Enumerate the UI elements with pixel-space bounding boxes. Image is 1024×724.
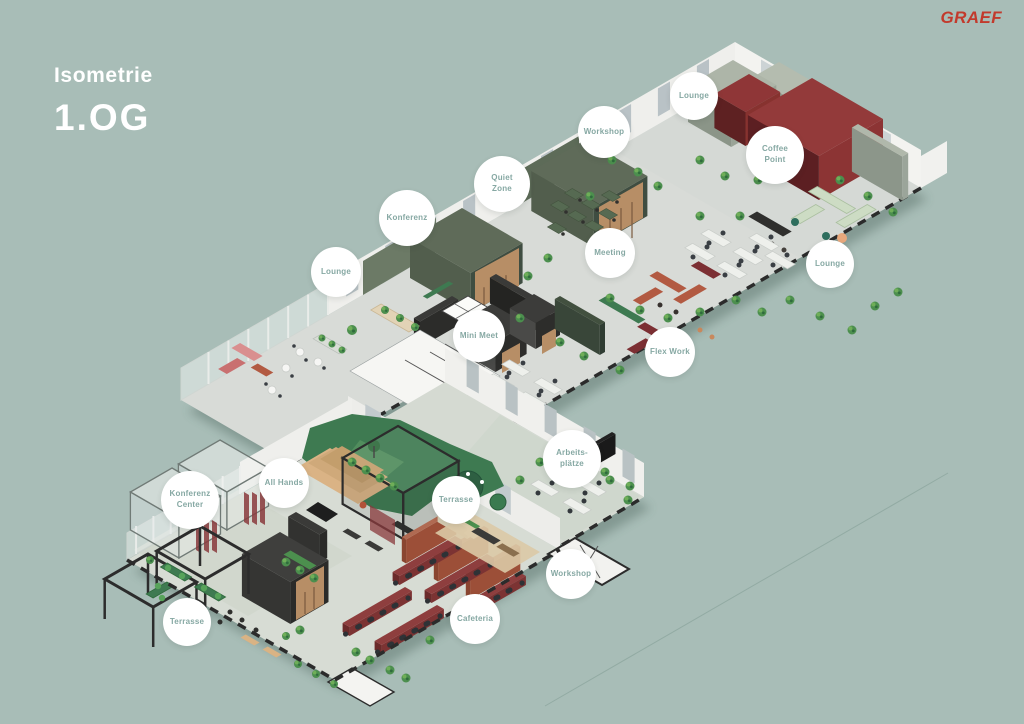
room-label-text: Cafeteria [457,614,493,625]
room-label-cafeteria: Cafeteria [450,594,500,644]
room-label-lounge-top: Lounge [670,72,718,120]
room-label-konferenz: Konferenz [379,190,435,246]
floorplan-illustration [0,0,1024,724]
room-label-text: All Hands [265,478,304,489]
room-label-text: Lounge [321,267,351,278]
room-label-text: Terrasse [439,495,473,506]
room-label-flex-work: Flex Work [645,327,695,377]
room-label-all-hands: All Hands [259,458,309,508]
graef-logo: GRAEF [941,8,1003,28]
room-label-text: Lounge [679,91,709,102]
room-label-text: Workshop [584,127,625,138]
room-label-workshop-bottom: Workshop [546,549,596,599]
room-label-text: Coffee Point [762,144,788,166]
room-label-text: Konferenz [387,213,428,224]
room-label-coffee-point: Coffee Point [746,126,804,184]
room-label-workshop-top: Workshop [578,106,630,158]
isometric-poster: Isometrie 1.OG GRAEF Lounge Workshop Cof… [0,0,1024,724]
room-label-text: Terrasse [170,617,204,628]
room-label-terrasse-bottom: Terrasse [163,598,211,646]
room-label-quiet-zone: Quiet Zone [474,156,530,212]
room-label-terrasse-mid: Terrasse [432,476,480,524]
room-label-mini-meet: Mini Meet [453,310,505,362]
room-label-text: Flex Work [650,347,690,358]
room-label-lounge-right: Lounge [806,240,854,288]
room-label-text: Quiet Zone [491,173,512,195]
title-block: Isometrie 1.OG [54,64,153,139]
room-label-text: Lounge [815,259,845,270]
room-label-text: Meeting [594,248,626,259]
room-label-text: Konferenz Center [170,489,211,511]
room-label-arbeitsplaetze: Arbeits- plätze [543,430,601,488]
room-label-text: Arbeits- plätze [556,448,588,470]
page-title: 1.OG [54,97,153,139]
room-label-konferenz-center: Konferenz Center [161,471,219,529]
room-label-text: Workshop [551,569,592,580]
room-label-text: Mini Meet [460,331,498,342]
room-label-lounge-left: Lounge [311,247,361,297]
room-label-meeting: Meeting [585,228,635,278]
page-subtitle: Isometrie [54,64,153,88]
